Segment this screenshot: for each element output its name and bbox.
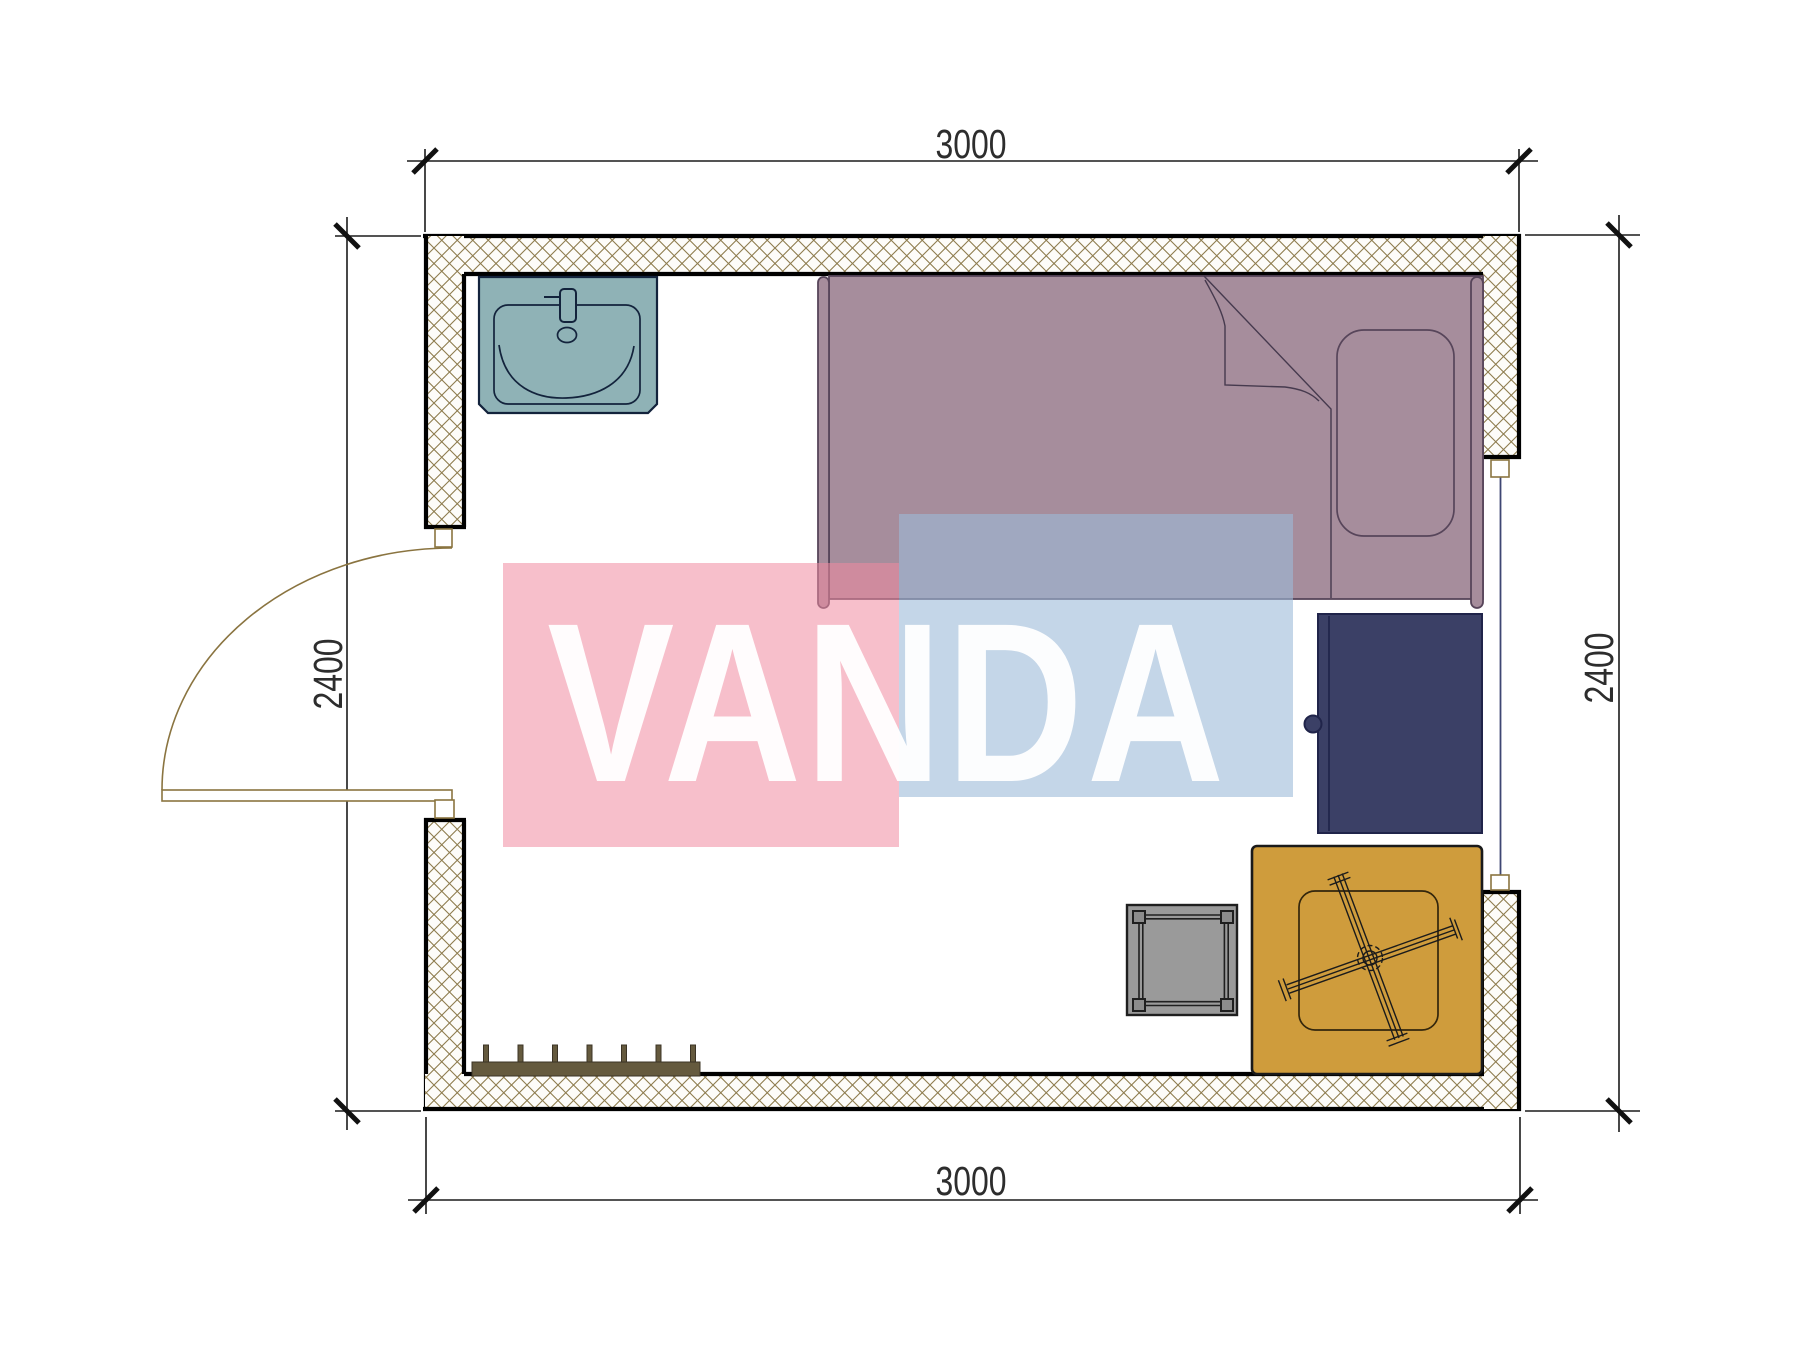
svg-text:3000: 3000 <box>935 121 1006 167</box>
svg-text:2400: 2400 <box>1576 632 1622 703</box>
svg-text:VANDA: VANDA <box>547 576 1228 829</box>
svg-text:2400: 2400 <box>305 638 351 709</box>
svg-text:3000: 3000 <box>935 1158 1006 1204</box>
